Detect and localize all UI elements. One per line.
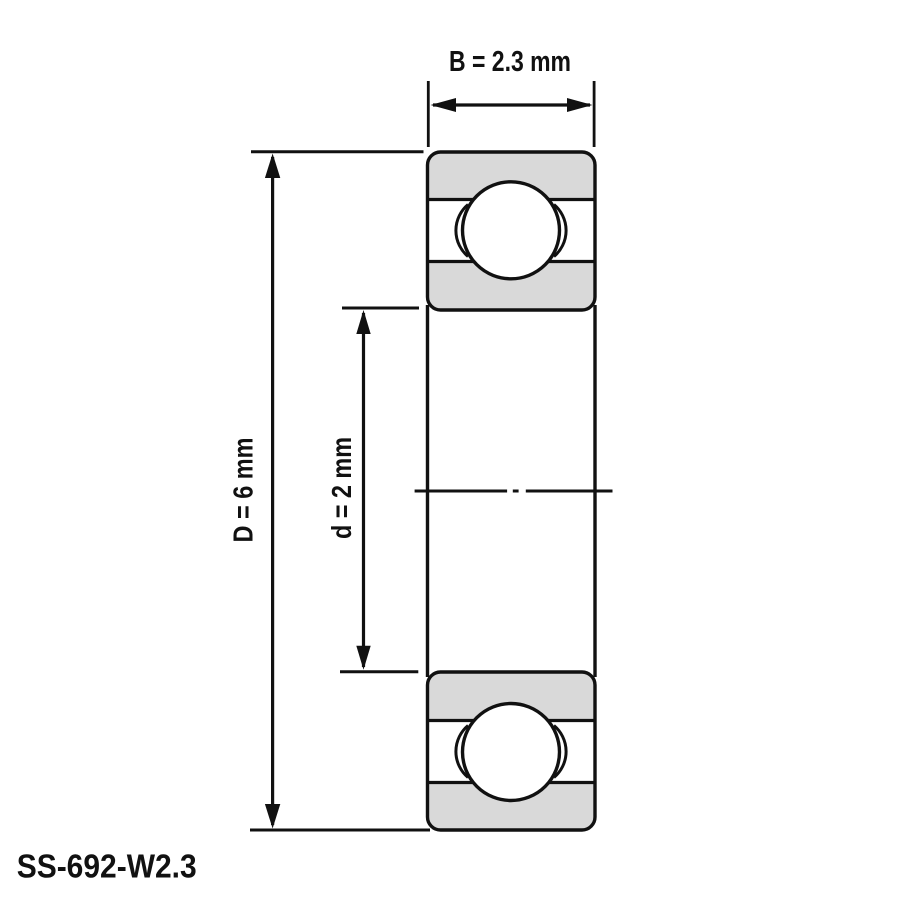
- svg-text:d = 2 mm: d = 2 mm: [326, 437, 357, 539]
- svg-text:SS-692-W2.3: SS-692-W2.3: [17, 849, 197, 886]
- svg-text:D = 6 mm: D = 6 mm: [228, 438, 259, 543]
- svg-text:B = 2.3 mm: B = 2.3 mm: [449, 46, 571, 78]
